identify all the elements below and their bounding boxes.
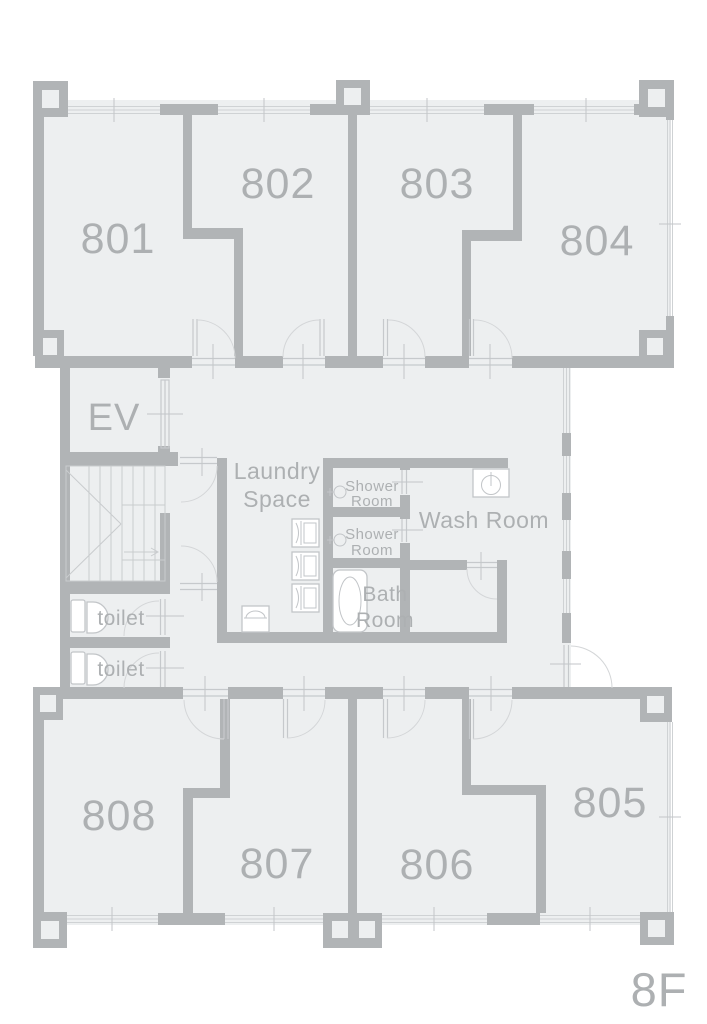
washing-machine-icon-washroom [473,469,509,497]
bath-room-label-line2: Room [356,609,414,632]
room-802-label: 802 [241,160,316,208]
toilet-1-label: toilet [97,607,144,630]
room-806-label: 806 [400,841,475,889]
shower-room-1-label-line2: Room [351,493,393,510]
laundry-space-label-line2: Space [243,486,311,512]
washing-machine-icon-2 [292,552,319,580]
room-805-label: 805 [573,779,648,827]
elevator-label: EV [88,397,141,439]
room-807-label: 807 [240,840,315,888]
room-801-label: 801 [81,215,156,263]
room-808-label: 808 [82,792,157,840]
room-803-label: 803 [400,160,475,208]
floor-plan-drawing: 801 802 803 804 805 806 807 808 EV Laund… [0,0,707,1024]
shower-room-2-label-line1: Shower [345,526,399,543]
room-804-label: 804 [560,217,635,265]
washing-machine-icon-3 [292,584,319,612]
toilet-2-label: toilet [97,658,144,681]
bath-room-label-line1: Bath [362,583,407,606]
floor-plan: 801 802 803 804 805 806 807 808 EV Laund… [0,0,707,1024]
wash-room-label: Wash Room [419,507,549,533]
laundry-space-label-line1: Laundry [234,458,321,484]
floor-label: 8F [631,963,688,1016]
shower-room-2-label-line2: Room [351,542,393,559]
laundry-sink-icon [242,606,269,632]
washing-machine-icon-1 [292,519,319,547]
